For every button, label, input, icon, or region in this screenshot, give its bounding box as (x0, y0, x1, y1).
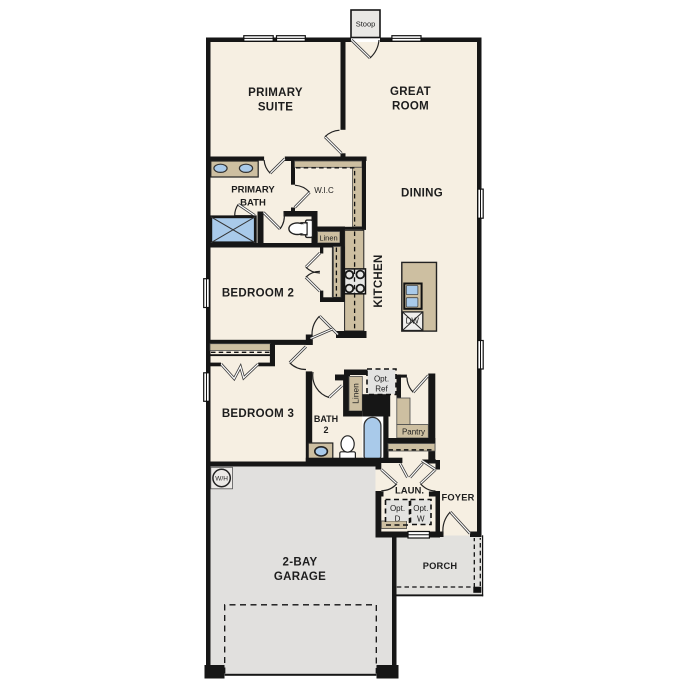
svg-text:DW: DW (406, 317, 420, 326)
svg-text:BATH: BATH (314, 414, 338, 424)
svg-text:Pantry: Pantry (402, 428, 425, 437)
svg-text:Opt.: Opt. (390, 504, 405, 513)
svg-text:PRIMARY: PRIMARY (231, 185, 275, 196)
svg-text:KITCHEN: KITCHEN (373, 254, 385, 307)
svg-text:2: 2 (323, 425, 328, 435)
svg-text:Linen: Linen (351, 383, 361, 404)
svg-text:Ref: Ref (375, 385, 388, 394)
svg-text:SUITE: SUITE (258, 102, 293, 114)
svg-text:DINING: DINING (401, 188, 443, 200)
svg-text:LAUN.: LAUN. (395, 486, 424, 497)
svg-text:BEDROOM 2: BEDROOM 2 (222, 288, 294, 300)
svg-text:W: W (417, 515, 425, 524)
svg-text:W.I.C: W.I.C (314, 186, 334, 195)
svg-text:BEDROOM 3: BEDROOM 3 (222, 408, 294, 420)
svg-text:W/H: W/H (215, 476, 228, 483)
svg-text:FOYER: FOYER (441, 492, 474, 502)
svg-text:ROOM: ROOM (392, 101, 429, 113)
svg-text:Stoop: Stoop (356, 20, 376, 29)
svg-text:2-BAY: 2-BAY (283, 557, 318, 569)
svg-text:PORCH: PORCH (423, 561, 458, 571)
svg-text:D: D (395, 515, 401, 524)
svg-text:GARAGE: GARAGE (274, 571, 326, 583)
svg-text:PRIMARY: PRIMARY (248, 87, 303, 99)
svg-text:Opt.: Opt. (374, 375, 389, 384)
svg-text:Linen: Linen (319, 234, 337, 243)
svg-text:GREAT: GREAT (390, 86, 431, 98)
svg-text:Opt.: Opt. (413, 504, 428, 513)
